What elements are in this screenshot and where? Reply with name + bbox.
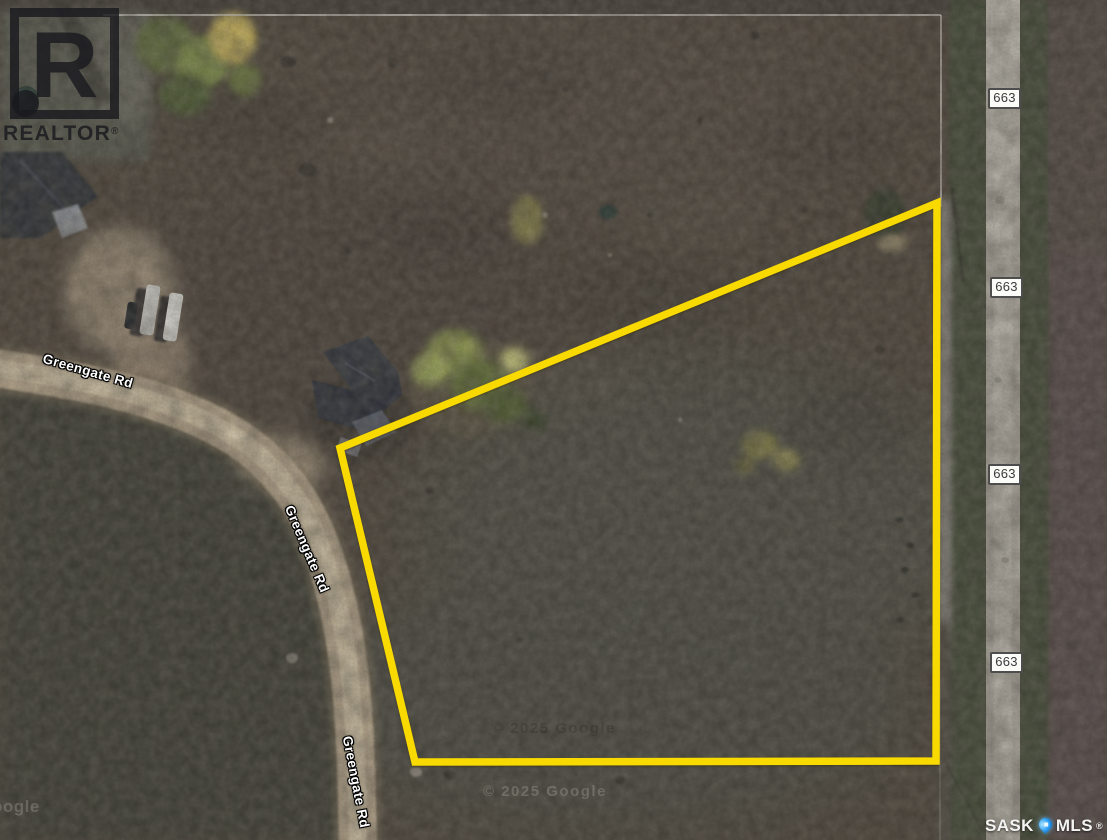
sask-mls-logo: SASK MLS ® (985, 816, 1103, 836)
google-attribution: © 2025 Google (483, 783, 607, 800)
realtor-word: REALTOR (3, 122, 111, 145)
highway-663-shield: 663 (990, 277, 1023, 298)
satellite-imagery (0, 0, 1107, 840)
highway-663-shield: 663 (988, 88, 1021, 109)
registered-symbol: ® (111, 126, 118, 137)
highway-663-shield: 663 (988, 464, 1021, 485)
satellite-map[interactable]: 663 663 663 663 Greengate Rd Greengate R… (0, 0, 1107, 840)
google-attribution: © 2025 Google (492, 720, 616, 737)
mls-pin-icon (1036, 815, 1054, 833)
registered-symbol: ® (1096, 821, 1103, 831)
highway-663-shield: 663 (990, 652, 1023, 673)
photo-grain (0, 0, 1107, 840)
realtor-logo-wordmark: REALTOR® (3, 122, 118, 146)
sask-mls-mls-text: MLS (1056, 816, 1093, 836)
realtor-logo: R REALTOR® (6, 6, 141, 156)
sask-mls-sask-text: SASK (985, 816, 1034, 836)
google-attribution-partial: oogle (0, 797, 40, 817)
realtor-logo-letter: R (31, 12, 99, 117)
realtor-logo-circle-icon (12, 90, 39, 117)
